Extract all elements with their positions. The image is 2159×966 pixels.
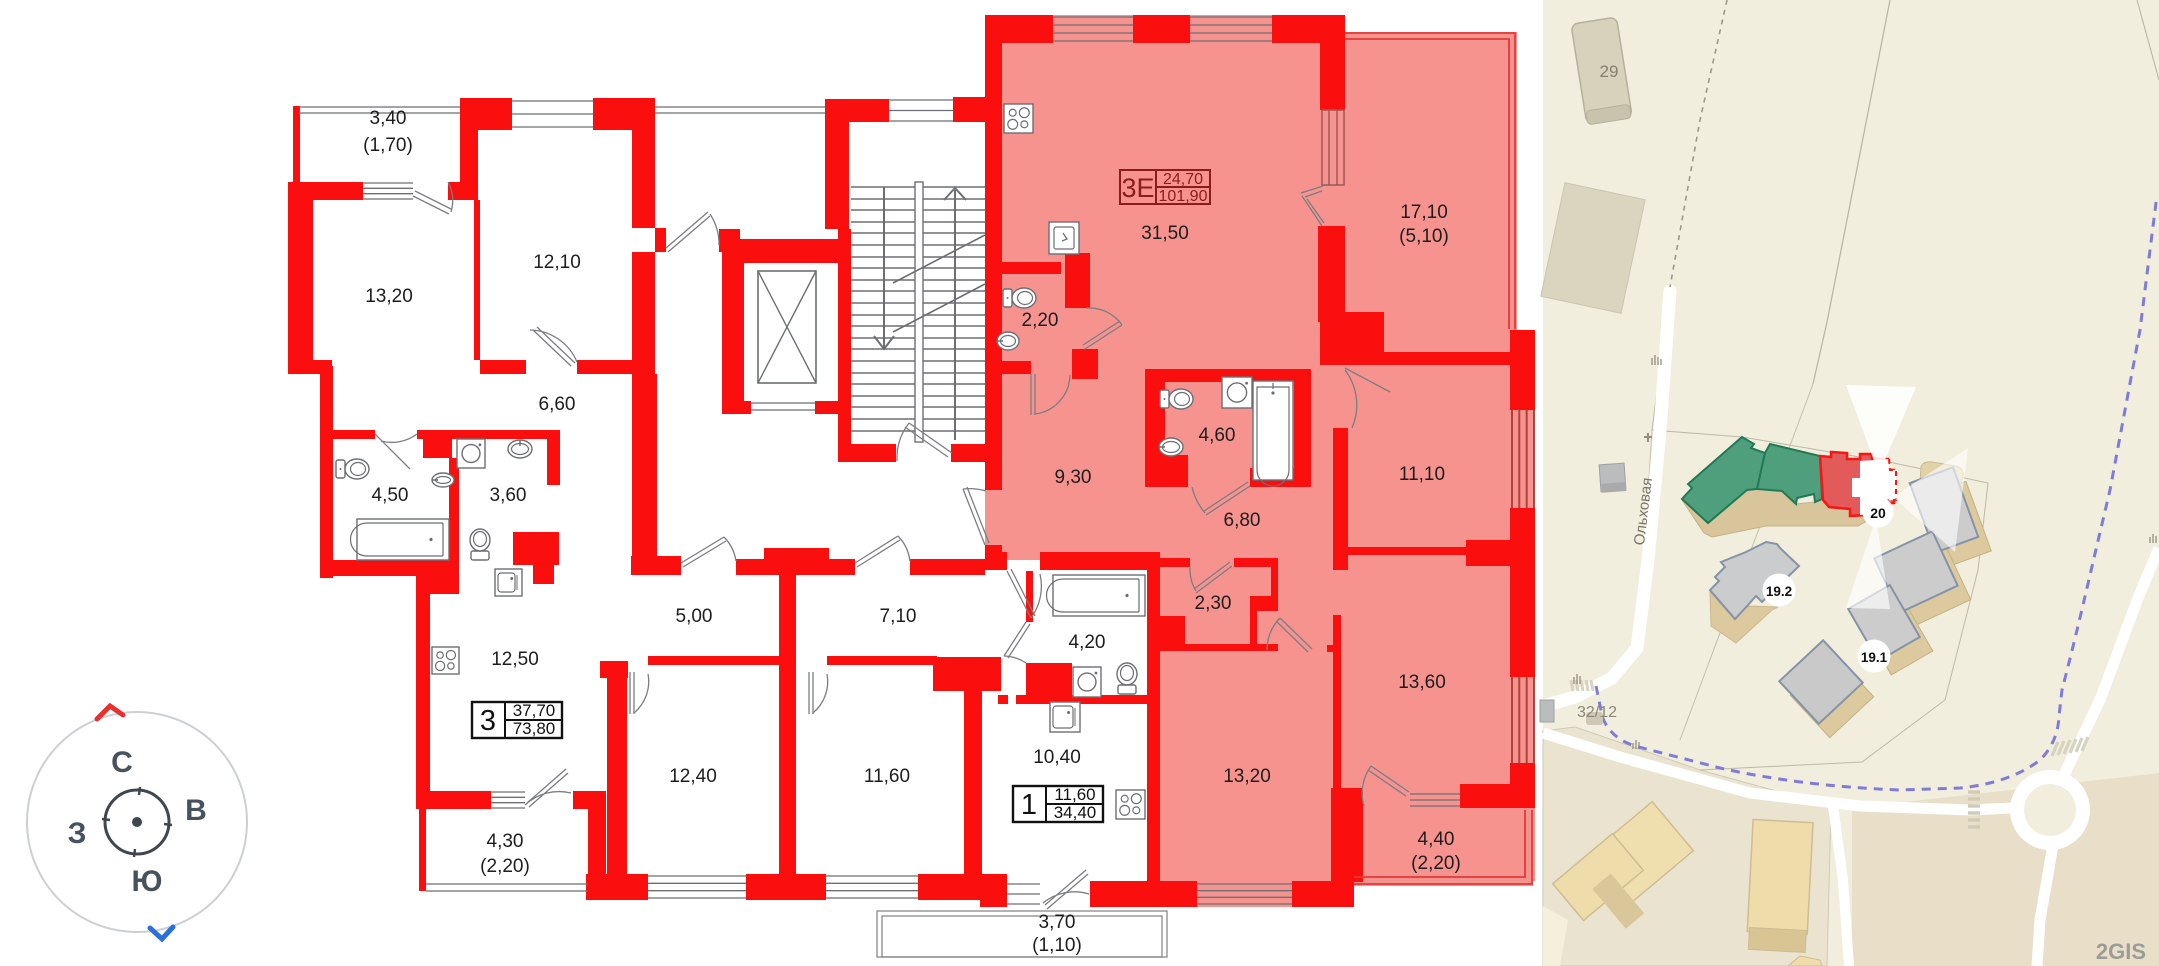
- svg-text:С: С: [111, 746, 133, 779]
- svg-text:4,40: 4,40: [1418, 829, 1455, 850]
- svg-text:101,90: 101,90: [1159, 188, 1208, 205]
- svg-text:(2,20): (2,20): [1411, 853, 1461, 874]
- svg-text:19.1: 19.1: [1861, 650, 1888, 665]
- svg-text:7,10: 7,10: [880, 606, 917, 627]
- svg-text:13,60: 13,60: [1398, 672, 1446, 693]
- svg-text:5,00: 5,00: [676, 606, 713, 627]
- svg-text:29: 29: [1600, 62, 1619, 81]
- svg-text:2,30: 2,30: [1195, 593, 1232, 614]
- svg-text:3,70: 3,70: [1039, 912, 1076, 933]
- svg-text:11,10: 11,10: [1399, 464, 1445, 485]
- svg-text:(1,10): (1,10): [1032, 935, 1082, 956]
- svg-text:12,50: 12,50: [491, 649, 539, 670]
- svg-text:9,30: 9,30: [1055, 467, 1092, 488]
- svg-text:3: 3: [480, 705, 496, 737]
- svg-text:З: З: [68, 817, 87, 850]
- svg-text:Ю: Ю: [132, 865, 163, 898]
- svg-text:20: 20: [1870, 505, 1886, 521]
- svg-text:34,40: 34,40: [1054, 803, 1097, 822]
- svg-text:(5,10): (5,10): [1399, 226, 1449, 247]
- svg-text:13,20: 13,20: [365, 286, 413, 307]
- svg-text:4,20: 4,20: [1069, 632, 1106, 653]
- svg-text:32/12: 32/12: [1577, 704, 1617, 721]
- svg-text:В: В: [185, 794, 207, 827]
- svg-text:4,60: 4,60: [1199, 425, 1236, 446]
- svg-text:24,70: 24,70: [1163, 171, 1203, 188]
- svg-text:1: 1: [1021, 789, 1037, 821]
- svg-text:(2,20): (2,20): [480, 856, 530, 877]
- svg-text:(1,70): (1,70): [363, 135, 413, 156]
- svg-text:2GIS: 2GIS: [2096, 939, 2146, 964]
- svg-text:6,80: 6,80: [1224, 510, 1261, 531]
- svg-text:31,50: 31,50: [1141, 223, 1189, 244]
- svg-text:4,30: 4,30: [487, 831, 524, 852]
- svg-text:2,20: 2,20: [1022, 310, 1059, 331]
- svg-text:37,70: 37,70: [513, 701, 556, 720]
- svg-text:12,40: 12,40: [669, 766, 717, 787]
- svg-text:13,20: 13,20: [1223, 766, 1271, 787]
- svg-text:3,60: 3,60: [490, 485, 527, 506]
- svg-text:6,60: 6,60: [539, 394, 576, 415]
- svg-text:3Е: 3Е: [1121, 173, 1154, 203]
- svg-text:73,80: 73,80: [513, 719, 556, 738]
- svg-text:11,60: 11,60: [1054, 785, 1095, 804]
- svg-text:3,40: 3,40: [370, 108, 407, 129]
- svg-text:4,50: 4,50: [372, 485, 409, 506]
- svg-text:11,60: 11,60: [864, 766, 910, 787]
- svg-text:17,10: 17,10: [1400, 202, 1448, 223]
- svg-text:10,40: 10,40: [1033, 747, 1081, 768]
- svg-text:12,10: 12,10: [533, 252, 581, 273]
- svg-text:19.2: 19.2: [1766, 584, 1792, 599]
